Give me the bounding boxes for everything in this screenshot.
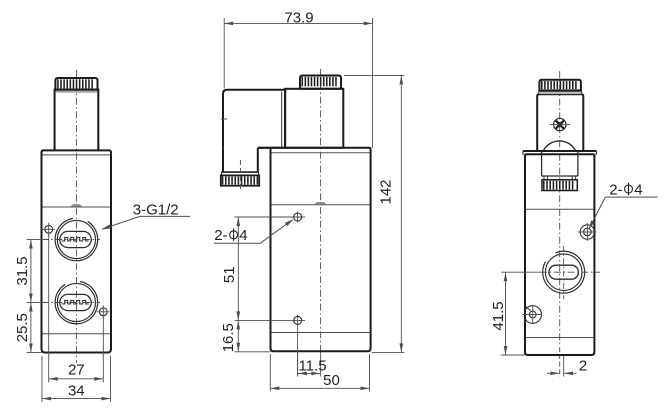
svg-text:2: 2 bbox=[579, 358, 587, 375]
svg-text:50: 50 bbox=[323, 372, 340, 389]
svg-text:4: 4 bbox=[239, 227, 247, 244]
svg-text:73.9: 73.9 bbox=[284, 10, 313, 27]
svg-text:31.5: 31.5 bbox=[14, 256, 31, 285]
svg-text:34: 34 bbox=[68, 382, 85, 399]
svg-text:2-: 2- bbox=[214, 227, 227, 244]
svg-text:4: 4 bbox=[634, 181, 642, 198]
svg-text:16.5: 16.5 bbox=[220, 323, 237, 352]
svg-text:142: 142 bbox=[378, 179, 395, 204]
svg-text:25.5: 25.5 bbox=[14, 313, 31, 342]
svg-text:41.5: 41.5 bbox=[490, 301, 507, 330]
svg-text:51: 51 bbox=[221, 266, 238, 283]
svg-text:3-G1/2: 3-G1/2 bbox=[133, 201, 179, 218]
svg-text:2-: 2- bbox=[609, 181, 622, 198]
svg-text:27: 27 bbox=[68, 361, 85, 378]
